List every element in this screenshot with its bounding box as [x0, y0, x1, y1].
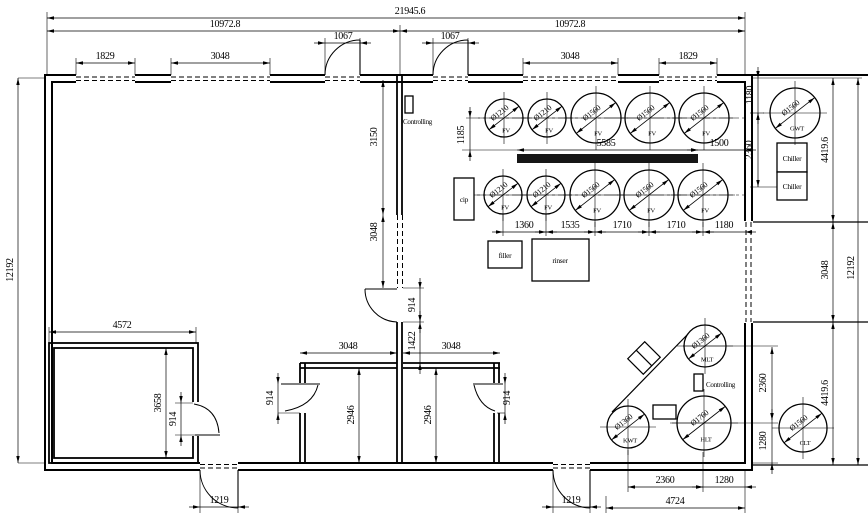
dimension-label: 1829	[679, 51, 698, 62]
tank-name-label: FV	[648, 131, 656, 138]
tank-name-label: FV	[545, 128, 553, 135]
tank-gwt-10: Ø1560GWT	[763, 81, 827, 145]
tank-diameter-label: Ø1210	[489, 103, 511, 123]
dimension-arrow	[16, 456, 19, 463]
door-swing-arc	[433, 40, 468, 75]
dimension-arrow	[756, 113, 759, 120]
centerlines	[18, 12, 862, 513]
dimension-label: 914	[407, 298, 418, 312]
dimension-label: 4419.6	[820, 137, 831, 163]
platform-bar	[517, 154, 698, 163]
dimension-label: 914	[265, 391, 276, 405]
tank-name-label: GWT	[790, 126, 804, 133]
dimension-label: 2946	[346, 405, 357, 424]
dimension-arrow	[856, 458, 859, 465]
door-swing-arc	[365, 289, 397, 322]
equipment-label: rinser	[552, 256, 568, 265]
dimension-arrow	[164, 348, 167, 355]
wall-opening	[76, 73, 135, 84]
dimension-label: 1829	[96, 51, 115, 62]
dimension-arrow	[831, 315, 834, 322]
dimension-arrow	[831, 322, 834, 329]
equipment-label: filler	[499, 251, 513, 260]
wall-opening	[433, 73, 468, 84]
dimension-label: 1710	[613, 220, 632, 231]
dimension-label: 1185	[456, 125, 467, 144]
tank-diameter-label: Ø1560	[780, 98, 802, 118]
dimension-label: 1180	[745, 85, 756, 104]
tank-name-label: MLT	[701, 357, 714, 364]
equipment-filler: filler	[488, 241, 522, 268]
equipment-label: Chiller	[783, 154, 803, 163]
wall-opening	[553, 461, 590, 472]
dimension-label: 10972.8	[555, 19, 586, 30]
wall-opening	[523, 73, 618, 84]
tank-kwt-12: Ø1360KWT	[600, 399, 656, 455]
dimension-arrow	[856, 78, 859, 85]
tanks: Ø1210FVØ1210FVØ1560FVØ1560FVØ1560FVØ1210…	[477, 81, 834, 459]
dimension-arrow	[263, 61, 270, 64]
dimension-label: 3658	[153, 393, 164, 412]
wall-opening	[171, 73, 270, 84]
dimension-label: 5585	[597, 138, 616, 149]
dimension-arrow	[357, 368, 360, 375]
dimension-label: 3048	[339, 341, 358, 352]
dimension-arrow	[628, 485, 635, 488]
equipment-rinser: rinser	[532, 239, 589, 281]
tank-name-label: FV	[593, 208, 601, 215]
door-swing-arc	[325, 40, 360, 75]
dimension-label: 3150	[369, 127, 380, 146]
equipment-label: Chiller	[783, 182, 803, 191]
dimension-label: 1280	[715, 475, 734, 486]
dimension-arrow	[128, 61, 135, 64]
tank-name-label: FV	[501, 205, 509, 212]
wall-opening	[192, 402, 200, 436]
dimension-arrow	[47, 16, 54, 19]
dimension-arrow	[517, 148, 524, 151]
dimension-label: 2360	[744, 140, 755, 159]
tank-mlt-11: Ø1360MLT	[677, 318, 733, 374]
dimension-arrow	[171, 61, 178, 64]
tank-name-label: FV	[594, 131, 602, 138]
dimension-arrow	[831, 222, 834, 229]
dimension-arrow	[76, 61, 83, 64]
dimension-arrow	[738, 16, 745, 19]
tank-diameter-label: Ø1560	[580, 180, 602, 200]
tank-diameter-label: Ø1210	[532, 103, 554, 123]
dimension-label: 10972.8	[210, 19, 241, 30]
wall-opening	[744, 221, 753, 323]
equipment-outline	[694, 374, 703, 391]
wall-opening	[325, 73, 360, 84]
dimension-arrow	[738, 29, 745, 32]
equipment-outline	[653, 405, 676, 419]
dimension-label: 12192	[846, 256, 857, 280]
dimension-label: 3048	[561, 51, 580, 62]
dimension-arrow	[381, 208, 384, 215]
dimension-label: 3048	[442, 341, 461, 352]
dimension-label: 3048	[820, 260, 831, 279]
dimension-arrow	[47, 29, 54, 32]
dimension-arrow	[381, 281, 384, 288]
dimension-arrow	[434, 456, 437, 463]
equipment-controlling: Controlling	[694, 374, 736, 391]
dimension-arrow	[300, 351, 307, 354]
auger-line	[612, 334, 688, 412]
dimension-arrow	[659, 61, 666, 64]
dimension-arrow	[434, 368, 437, 375]
dimension-label: 1219	[210, 495, 229, 506]
floor-plan-svg: 21945.610972.810972.81829304810671067304…	[0, 0, 868, 517]
tank-diameter-label: Ø1560	[689, 103, 711, 123]
dimension-arrow	[523, 61, 530, 64]
dimension-label: 1535	[561, 220, 580, 231]
equipment-label: Controlling	[403, 118, 433, 126]
tank-name-label: CLT	[800, 440, 811, 447]
dimension-arrow	[393, 29, 400, 32]
dimension-label: 1500	[710, 138, 729, 149]
tank-name-label: KWT	[623, 438, 637, 445]
dimension-label: 914	[168, 412, 179, 426]
dimension-arrow	[831, 78, 834, 85]
dimension-label: 3048	[369, 222, 380, 241]
equipment-cip: cip	[454, 178, 474, 220]
dimension-arrow	[611, 61, 618, 64]
tank-diameter-label: Ø1210	[488, 180, 510, 200]
dimension-label: 1067	[334, 31, 353, 42]
tank-name-label: FV	[502, 128, 510, 135]
dimension-label: 2360	[758, 373, 769, 392]
equipment-label: Controlling	[706, 381, 736, 389]
equipment-outline	[405, 96, 413, 113]
tank-name-label: FV	[647, 208, 655, 215]
tank-diameter-label: Ø1360	[613, 412, 635, 432]
dimension-arrow	[189, 330, 196, 333]
dimension-label: 1360	[515, 220, 534, 231]
dimension-arrow	[606, 506, 613, 509]
dimension-label: 1422	[407, 331, 418, 350]
tank-name-label: FV	[702, 131, 710, 138]
dimension-label: 21945.6	[395, 6, 426, 17]
tank-diameter-label: Ø1560	[788, 413, 810, 433]
tank-diameter-label: Ø1560	[688, 180, 710, 200]
dimension-label: 1280	[758, 431, 769, 450]
cold-room-inner-wall	[54, 348, 193, 458]
dimension-arrow	[381, 215, 384, 222]
tank-diameter-label: Ø1560	[634, 180, 656, 200]
dimension-arrow	[400, 29, 407, 32]
tank-diameter-label: Ø1360	[690, 331, 712, 351]
tank-diameter-label: Ø1210	[531, 180, 553, 200]
floor-plan-drawing: 21945.610972.810972.81829304810671067304…	[0, 0, 868, 517]
dimension-arrow	[710, 61, 717, 64]
door-swing-arc	[474, 385, 495, 411]
dimension-arrow	[756, 180, 759, 187]
dimension-arrow	[16, 78, 19, 85]
tank-diameter-label: Ø1560	[635, 103, 657, 123]
dimension-label: 12192	[5, 258, 16, 282]
equipment-box	[653, 405, 676, 419]
dimension-label: 4572	[113, 320, 132, 331]
dimension-arrow	[831, 215, 834, 222]
dimension-arrow	[403, 351, 410, 354]
wall-opening	[659, 73, 717, 84]
dimension-label: 1067	[441, 31, 460, 42]
equipment-controlling: Controlling	[403, 96, 433, 126]
dimension-label: 1219	[562, 495, 581, 506]
dimension-label: 1180	[715, 220, 734, 231]
dimension-label: 3048	[211, 51, 230, 62]
wall-opening	[493, 383, 501, 413]
tank-fv-9: Ø1560FV	[671, 163, 735, 227]
mill-symbol	[628, 342, 661, 375]
tank-hlt-13: Ø1760HLT	[670, 389, 738, 457]
dimension-arrow	[493, 351, 500, 354]
dimension-label: 4419.6	[820, 380, 831, 406]
dimension-arrow	[831, 458, 834, 465]
wall-opening	[298, 383, 307, 413]
dimension-label: 914	[502, 391, 513, 405]
wall-opening	[200, 461, 238, 472]
tank-name-label: FV	[701, 208, 709, 215]
equipment-label: cip	[460, 195, 469, 204]
dimension-label: 2360	[656, 475, 675, 486]
dimension-arrow	[738, 506, 745, 509]
equipment-chiller: Chiller	[777, 143, 807, 172]
tank-name-label: HLT	[700, 437, 711, 444]
equipment-chiller: Chiller	[777, 172, 807, 200]
dimension-label: 2946	[423, 405, 434, 424]
dimension-arrow	[357, 456, 360, 463]
dimension-arrow	[770, 347, 773, 354]
dimension-label: 1710	[667, 220, 686, 231]
dimension-arrow	[390, 351, 397, 354]
tank-diameter-label: Ø1760	[689, 408, 711, 428]
dimension-arrow	[164, 451, 167, 458]
tank-name-label: FV	[544, 205, 552, 212]
dimension-label: 4724	[666, 496, 685, 507]
tank-diameter-label: Ø1560	[581, 103, 603, 123]
